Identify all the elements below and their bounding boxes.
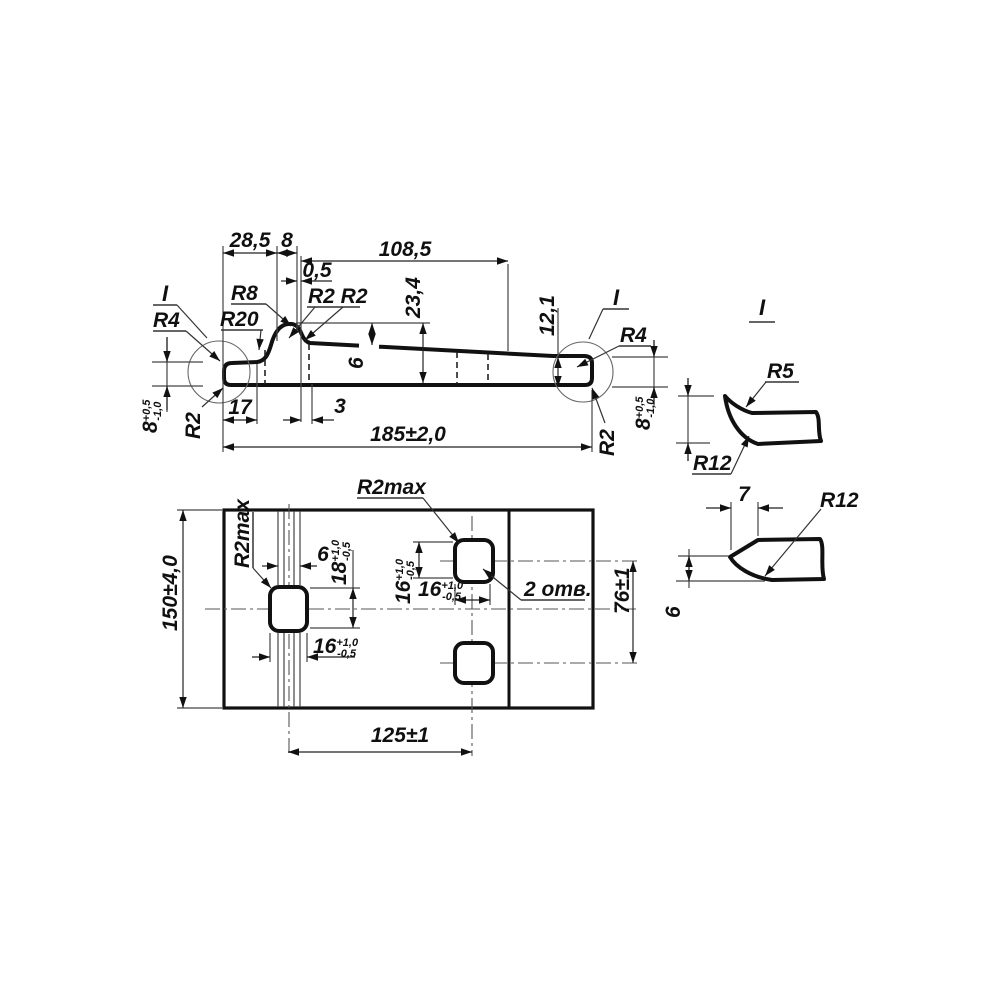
dim-17: 17 bbox=[228, 396, 253, 419]
radius-r2-right-label: R2 bbox=[596, 429, 619, 456]
r2max-top-label: R2max bbox=[357, 476, 427, 499]
detail-view-title: I bbox=[759, 295, 766, 320]
dim-tip-height: 6 bbox=[662, 606, 685, 618]
detail-mark-left: I bbox=[162, 281, 169, 306]
dim-total-length: 185±2,0 bbox=[370, 423, 446, 446]
dim-thickness-left: 8+0,5-1,0 bbox=[139, 399, 164, 433]
dim-23-4: 23,4 bbox=[402, 277, 425, 319]
radius-r2-left-label: R2 bbox=[182, 412, 205, 439]
radius-r20-label: R20 bbox=[220, 308, 259, 331]
detail-mark-right: I bbox=[613, 285, 620, 310]
dim-hole-height: 18+1,0-0,5 bbox=[328, 539, 353, 585]
dim-28-5: 28,5 bbox=[229, 229, 271, 252]
dim-108-5: 108,5 bbox=[379, 238, 432, 261]
holes-count-note: 2 отв. bbox=[523, 578, 592, 601]
dim-12-1: 12,1 bbox=[536, 295, 559, 336]
radius-r5-label: R5 bbox=[767, 360, 794, 383]
dim-6-side: 6 bbox=[345, 357, 368, 369]
radius-r2-pair-label: R2 R2 bbox=[308, 285, 368, 308]
technical-drawing-page: 28,5 8 108,5 0,5 R8 R20 R2 R2 R4 R4 I I … bbox=[0, 0, 1000, 1000]
square-hole-right-upper bbox=[455, 540, 493, 582]
dim-thickness-right: 8+0,5-1,0 bbox=[632, 396, 657, 430]
dim-3: 3 bbox=[334, 395, 346, 418]
dim-holes-spacing: 76±1 bbox=[611, 567, 634, 614]
square-hole-right-lower bbox=[455, 643, 493, 683]
radius-r4-left-label: R4 bbox=[153, 309, 180, 332]
r2max-left-label: R2max bbox=[231, 498, 254, 568]
dim-8: 8 bbox=[281, 229, 293, 252]
dim-hole-width-bottom: 16+1,0-0,5 bbox=[313, 635, 359, 660]
radius-r8-label: R8 bbox=[231, 282, 258, 305]
dim-hole-width-right-horizontal: 16+1,0-0,5 bbox=[418, 578, 464, 603]
dim-0-5: 0,5 bbox=[302, 259, 332, 282]
dim-plate-height: 150±4,0 bbox=[159, 555, 182, 631]
dim-holes-offset: 125±1 bbox=[371, 724, 429, 747]
drawing-canvas: 28,5 8 108,5 0,5 R8 R20 R2 R2 R4 R4 I I … bbox=[0, 0, 1000, 1000]
dim-tip-width: 7 bbox=[738, 483, 751, 506]
dim-hole-width-right-vertical: 16+1,0-0,5 bbox=[392, 558, 417, 604]
radius-r12-lower-label: R12 bbox=[820, 489, 859, 512]
radius-r12-upper-label: R12 bbox=[693, 452, 732, 475]
square-hole-left bbox=[270, 587, 307, 631]
slope-dimension-gap bbox=[359, 346, 379, 347]
radius-r4-right-label: R4 bbox=[620, 324, 647, 347]
